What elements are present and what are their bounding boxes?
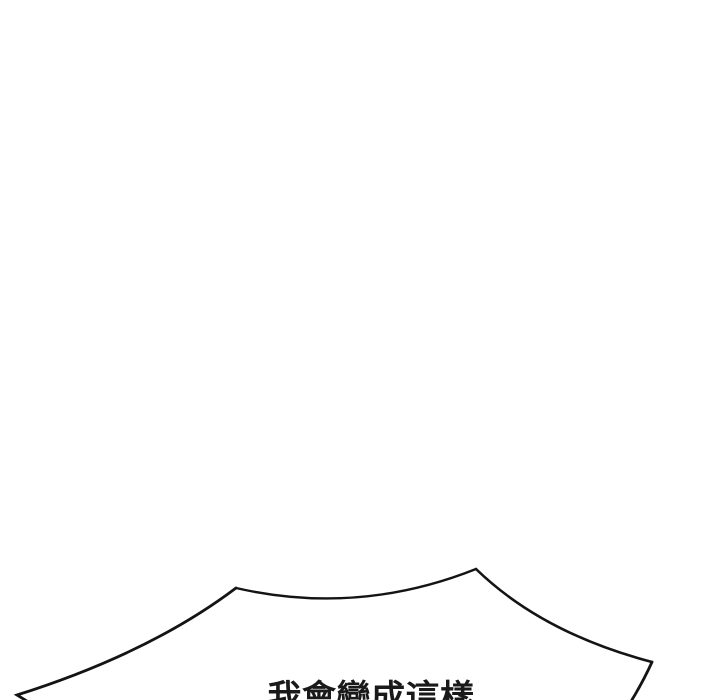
comic-panel: 我會變成這樣 [0,0,720,700]
speech-bubble-text: 我會變成這樣 [266,680,476,700]
speech-bubble-outline [0,0,720,700]
